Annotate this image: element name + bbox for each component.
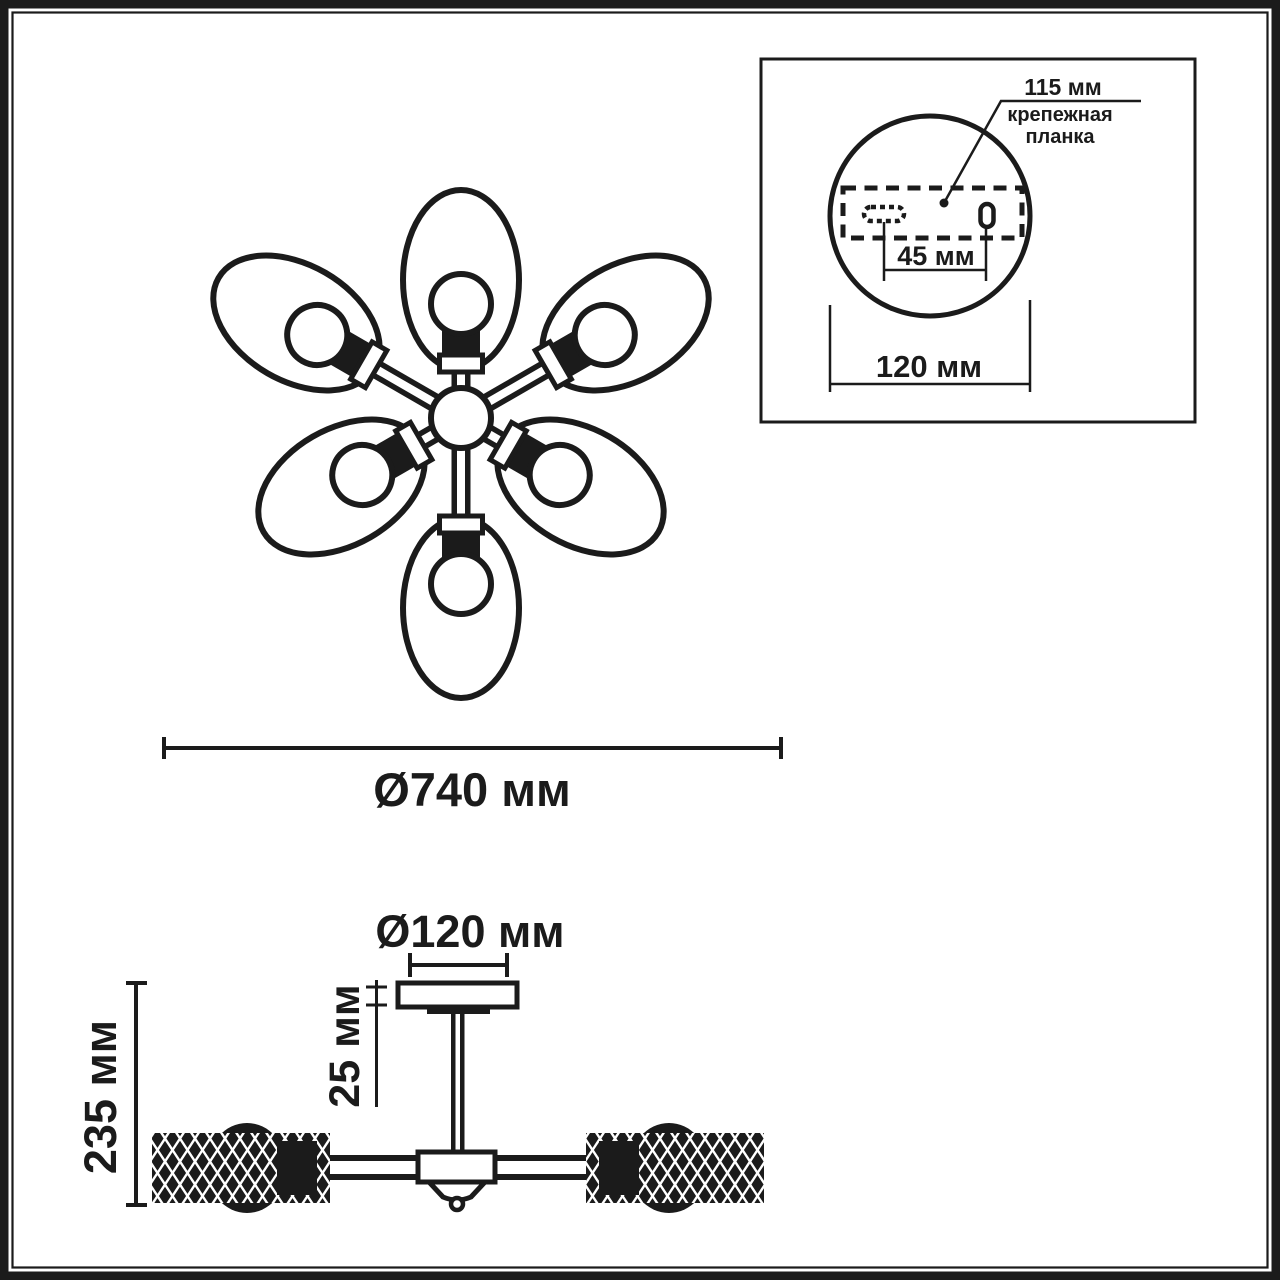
slot-hole: [864, 207, 904, 221]
hole-spacing-dimension: 45 мм: [884, 222, 986, 281]
mount-detail-inset: 115 мм крепежная планка 45 мм 120 мм: [761, 59, 1195, 422]
plate-name-line2: планка: [1025, 126, 1095, 148]
canopy-height-dimension: 25 мм: [321, 980, 387, 1108]
canopy-diameter-inset-label: 120 мм: [876, 349, 982, 384]
stem: [451, 1013, 456, 1153]
plate-offset-label: 115 мм: [1024, 74, 1102, 100]
canopy-circle: [830, 116, 1030, 316]
technical-drawing-canvas: Ø740 мм 115 мм крепежная планка 45 мм: [0, 0, 1280, 1280]
hole-spacing-label: 45 мм: [897, 241, 974, 271]
right-arm: [493, 1155, 588, 1161]
outer-frame: [4, 4, 1276, 1276]
inner-frame: [13, 13, 1268, 1268]
overall-diameter-dimension: Ø740 мм: [164, 737, 781, 816]
canopy-height-label: 25 мм: [321, 984, 369, 1107]
left-socket: [277, 1141, 317, 1195]
right-shade: [586, 1123, 764, 1213]
left-shade: [152, 1123, 330, 1213]
overall-height-dimension: 235 мм: [75, 983, 147, 1205]
side-hub: [418, 1152, 495, 1182]
top-view: Ø740 мм: [164, 190, 781, 816]
right-socket: [599, 1141, 639, 1195]
keyhole: [981, 204, 994, 227]
overall-height-label: 235 мм: [75, 1020, 126, 1174]
canopy: [398, 983, 517, 1007]
canopy-diameter-label: Ø120 мм: [375, 906, 564, 957]
canopy-lip: [427, 1007, 490, 1014]
lamp-arm-top: [403, 190, 519, 402]
side-view: Ø120 мм 25 мм 235 мм: [75, 906, 764, 1213]
center-hub: [431, 388, 491, 448]
plate-name-line1: крепежная: [1007, 104, 1112, 126]
canopy-diameter-dimension: Ø120 мм: [375, 906, 564, 977]
finial: [429, 1182, 485, 1210]
left-arm: [330, 1155, 420, 1161]
overall-diameter-label: Ø740 мм: [373, 763, 571, 816]
